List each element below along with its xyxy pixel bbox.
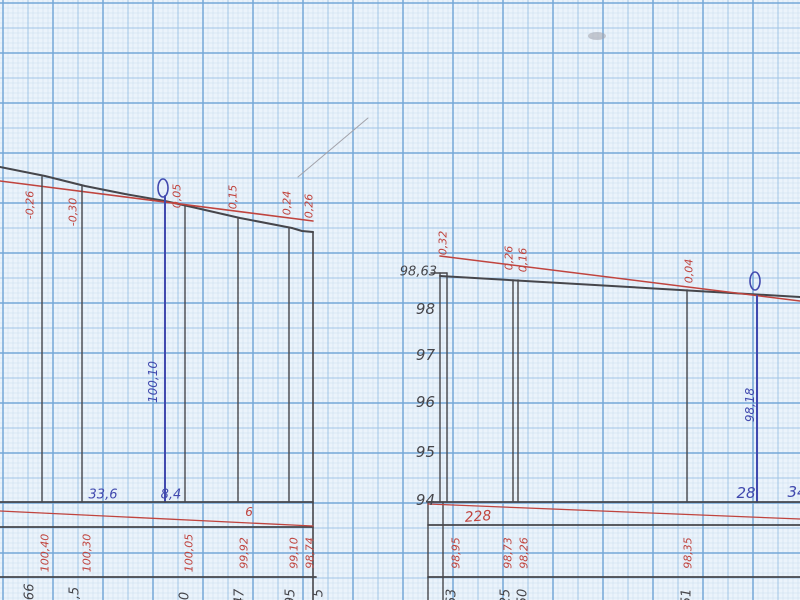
- ground-elevation-fragment: 3,5: [68, 587, 83, 600]
- profile-drawing: -0,26-0,300,050,150,240,26100,1033,68,46…: [0, 0, 800, 600]
- distance-value: 34: [787, 483, 800, 501]
- ground-elevation-fragment: 47: [233, 588, 248, 600]
- axis-elevation: 94: [416, 491, 435, 509]
- ground-elevation-fragment: 9,66: [23, 584, 38, 600]
- slope-mark: -0,30: [67, 198, 80, 226]
- design-elevation: 100,40: [39, 534, 52, 573]
- datum-elevation: 98,18: [743, 387, 757, 422]
- slope-mark: 0,04: [683, 259, 696, 284]
- slope-mark: 0,05: [171, 184, 184, 209]
- slope-mark: 0,24: [281, 191, 294, 216]
- design-elevation: 100,05: [183, 534, 196, 573]
- design-elevation: 99,10: [288, 537, 301, 569]
- ground-elevation-fragment: 63: [445, 589, 460, 600]
- paper-background: [0, 0, 800, 600]
- slope-mark: 0,26: [503, 246, 516, 271]
- red-note: 228: [464, 508, 492, 526]
- slope-mark: 0,16: [517, 248, 530, 273]
- distance-value: 8,4: [161, 488, 182, 503]
- datum-elevation: 100,10: [146, 361, 160, 403]
- axis-elevation: 96: [416, 393, 435, 411]
- slope-mark: 0,26: [303, 194, 316, 219]
- red-note: 6: [245, 505, 253, 519]
- axis-elevation: 98: [416, 300, 435, 318]
- scan-smudge: [588, 32, 606, 40]
- ground-elevation-fragment: 95: [284, 589, 299, 600]
- graph-paper-sheet: -0,26-0,300,050,150,240,26100,1033,68,46…: [0, 0, 800, 600]
- slope-mark: 0,32: [437, 231, 450, 256]
- ground-elevation-fragment: 51: [680, 589, 695, 600]
- design-elevation: 99,92: [238, 537, 251, 569]
- slope-mark: 0,15: [227, 185, 240, 210]
- axis-elevation: 95: [416, 443, 435, 461]
- axis-elevation: 97: [416, 346, 436, 364]
- ground-elevation-fragment: 5: [312, 589, 327, 597]
- ground-elevation-fragment: 50: [516, 589, 531, 600]
- design-elevation: 100,30: [81, 534, 94, 573]
- design-elevation: 98,26: [518, 537, 531, 569]
- distance-value: 28: [736, 484, 755, 502]
- slope-mark: -0,26: [24, 191, 37, 219]
- design-elevation: 98,95: [450, 537, 463, 569]
- ground-elevation-fragment: 0: [178, 592, 193, 600]
- distance-value: 33,6: [89, 488, 118, 503]
- design-elevation: 98,74: [304, 537, 317, 569]
- design-elevation: 98,73: [502, 537, 515, 569]
- axis-elevation: 98,63: [400, 265, 437, 280]
- ground-elevation-fragment: 25: [499, 589, 514, 600]
- design-elevation: 98,35: [682, 537, 695, 569]
